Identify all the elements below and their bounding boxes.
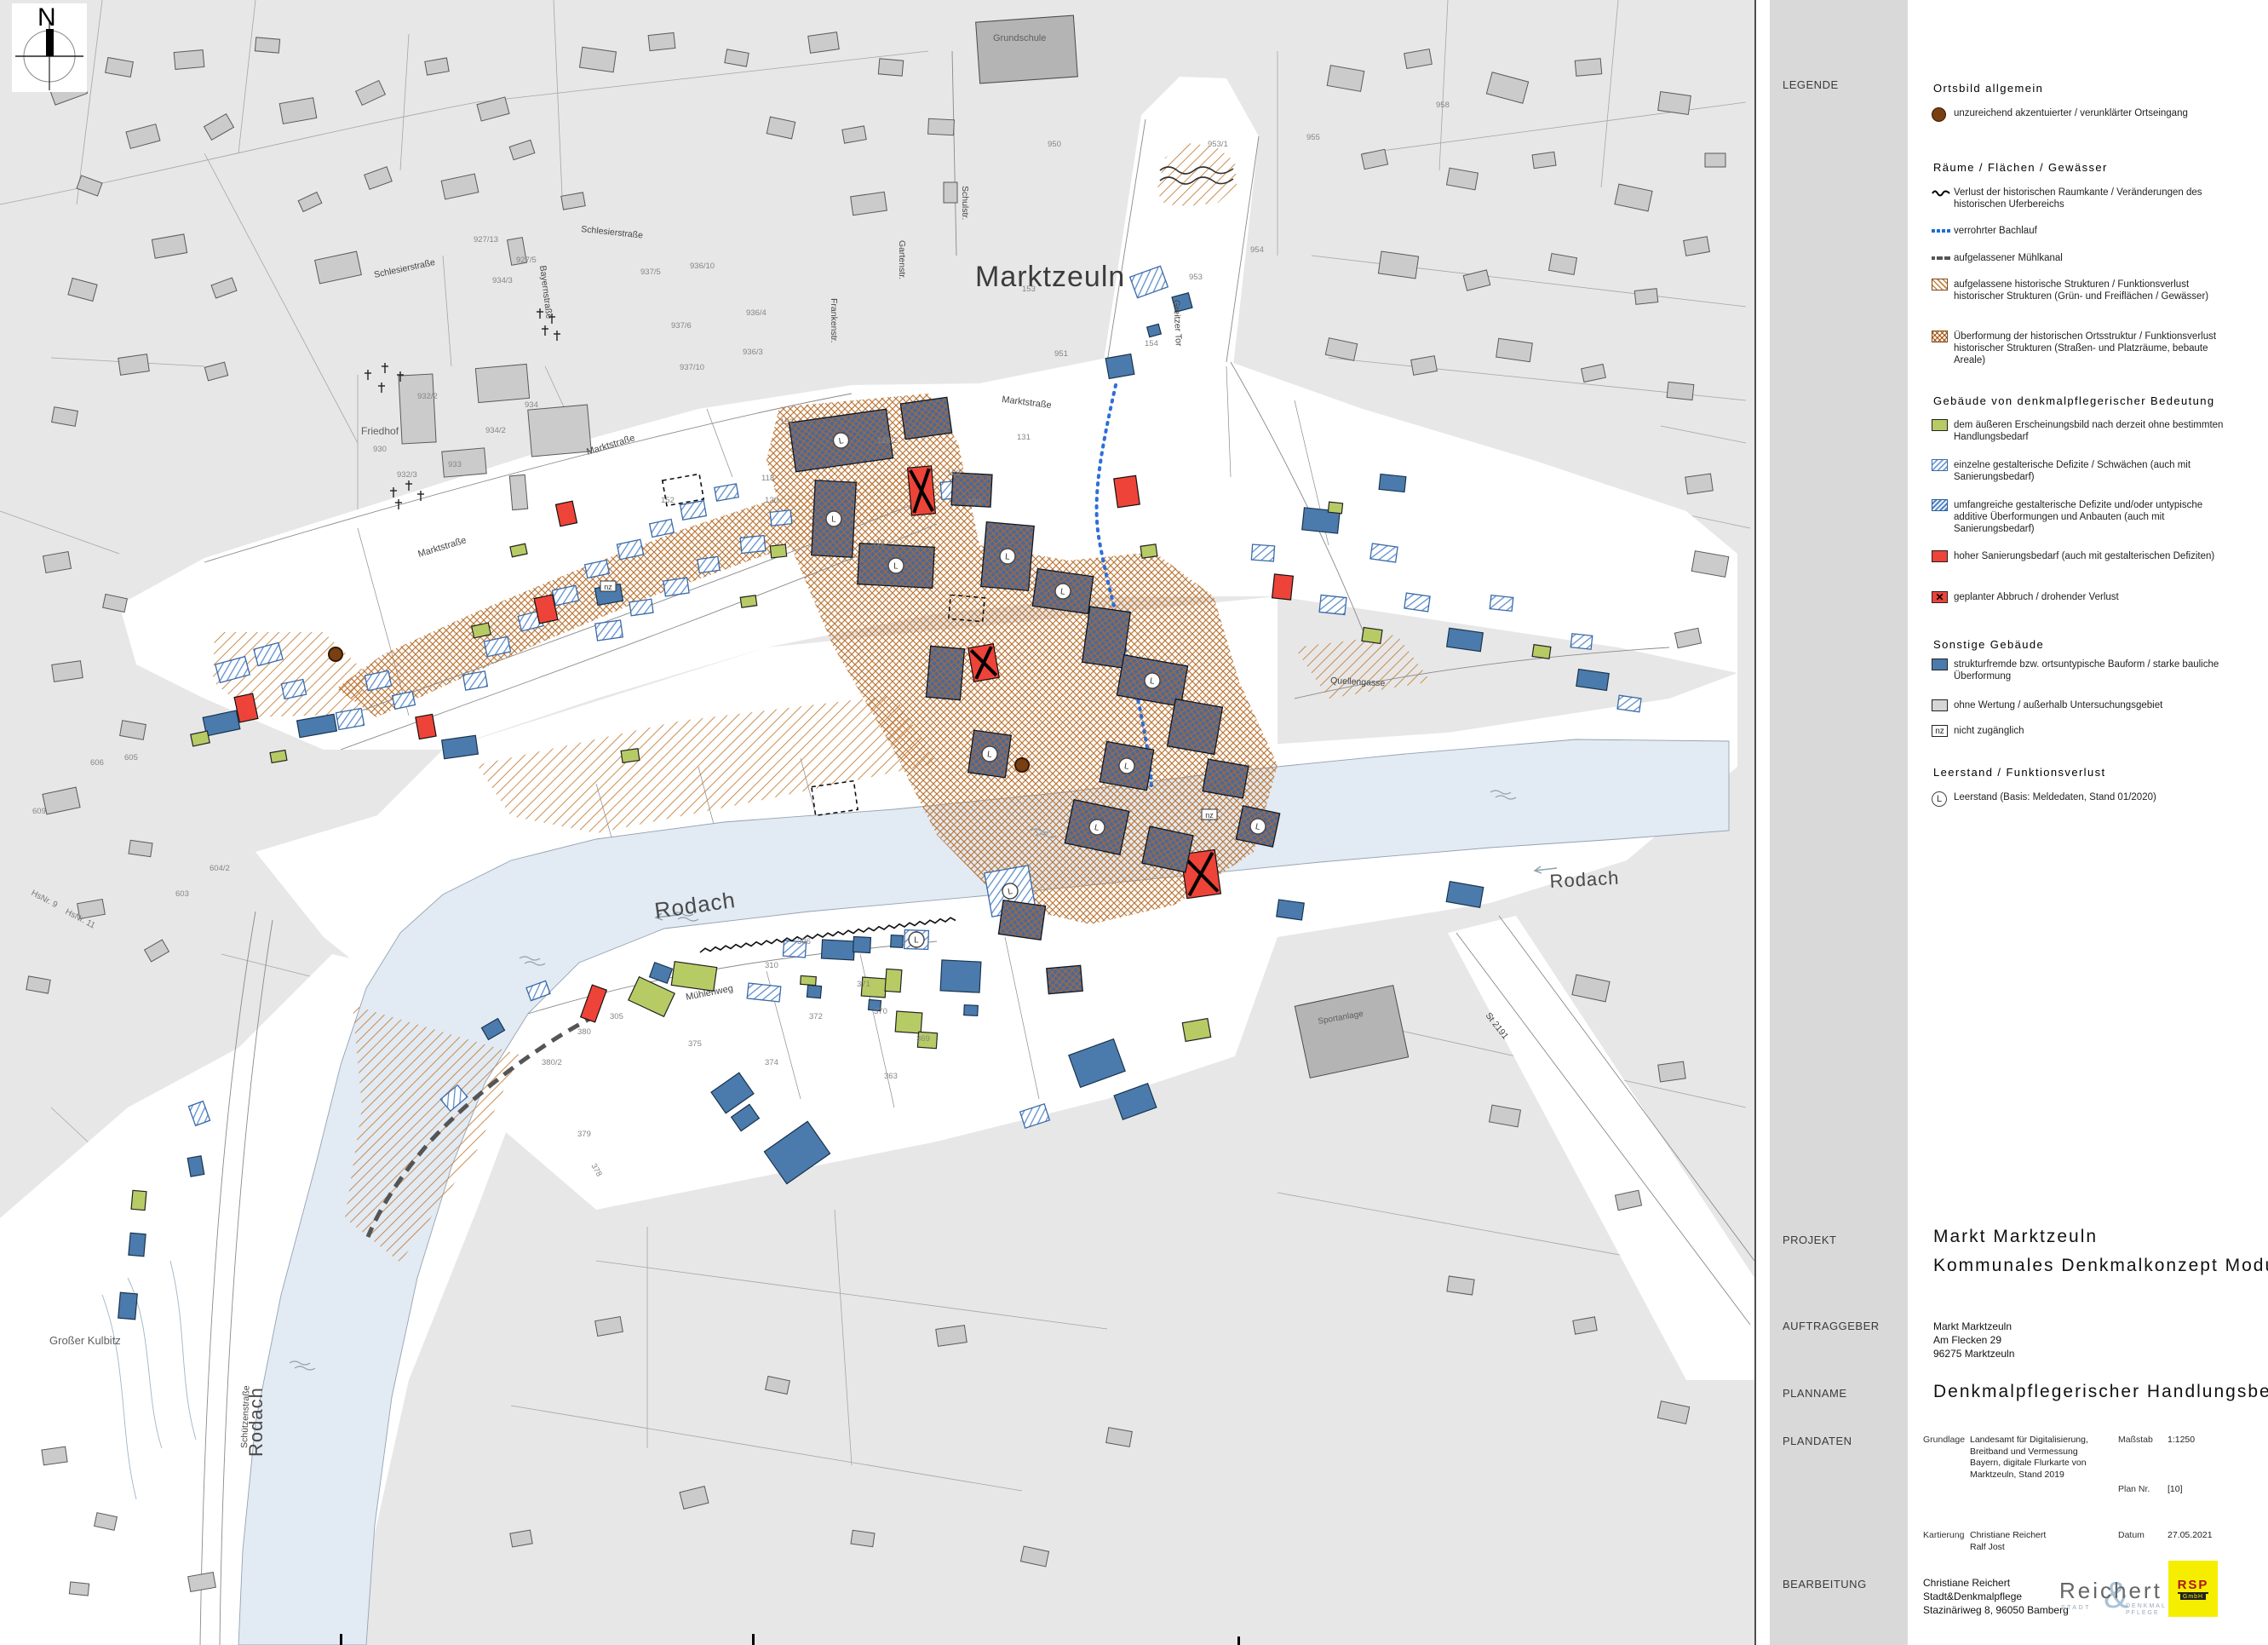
area-label: Großer Kulbitz: [49, 1334, 121, 1347]
reichert-logo-denkmalpflege: DENKMAL PFLEGE: [2126, 1603, 2167, 1617]
map-building-blue-solid: [1105, 354, 1134, 379]
map-building-green: [1532, 645, 1551, 659]
parcel-label: 375: [688, 1039, 702, 1049]
parcel-label: 118: [761, 474, 774, 483]
parcel-label: 937/5: [640, 267, 661, 277]
area-label: Grundschule: [993, 33, 1046, 43]
parcel-label: 369: [916, 1034, 930, 1044]
map-building-gray: [69, 1582, 89, 1596]
map-building-gray-large: [976, 15, 1078, 83]
gray-box-icon: [1932, 699, 1954, 711]
parcel-label: 951: [1054, 349, 1068, 359]
map-building-gray: [509, 475, 527, 509]
parcel-label: 936/4: [746, 308, 767, 318]
legend-item-text: nicht zugänglich: [1954, 725, 2235, 737]
legend-item-text: geplanter Abbruch / drohender Verlust: [1954, 591, 2235, 603]
parcel-label: 927/13: [474, 235, 498, 244]
map-building-green: [1182, 1019, 1210, 1042]
legend-item-text: dem äußeren Erscheinungsbild nach derzei…: [1954, 419, 2235, 443]
ortseingang-dot-icon: [329, 647, 342, 661]
auftraggeber-label: AUFTRAGGEBER: [1783, 1320, 1880, 1332]
legend-item: strukturfremde bzw. ortsuntypische Baufo…: [1932, 659, 2235, 682]
parcel-label: 604/2: [210, 864, 230, 873]
map-building-blue-solid: [1447, 628, 1484, 651]
map-building-blue-hatch: [595, 620, 623, 641]
nz-box-icon: nz: [1932, 725, 1954, 737]
legend-item: verrohrter Bachlauf: [1932, 225, 2235, 237]
parcel-label: 606: [90, 758, 104, 768]
planname-title: Denkmalpflegerischer Handlungsbedarf: [1933, 1382, 2268, 1402]
map-building-blue-solid: [891, 935, 904, 948]
legend-item: umfangreiche gestalterische Defizite und…: [1932, 499, 2235, 535]
plannr-value: [10]: [2168, 1484, 2183, 1496]
svg-text:nz: nz: [1205, 811, 1214, 820]
parcel-label: 605: [124, 753, 138, 762]
map-building-gray: [580, 47, 617, 72]
parcel-label: 374: [765, 1058, 778, 1067]
legend-item: aufgelassener Mühlkanal: [1932, 252, 2235, 264]
map-building-green: [1362, 628, 1382, 644]
map-building-green: [885, 969, 902, 992]
map-building-green: [770, 544, 786, 558]
legend-item: Verlust der historischen Raumkante / Ver…: [1932, 187, 2235, 210]
parcel-label: 958: [1436, 101, 1450, 110]
map-building-green: [1140, 544, 1157, 558]
svg-text:L: L: [831, 515, 837, 524]
legend-item: aufgelassene historische Strukturen / Fu…: [1932, 279, 2235, 302]
map-building-dark-core: L: [812, 480, 857, 557]
parcel-label: 370: [874, 1007, 887, 1016]
map-canvas: LLLLLLLLLLLLnznzMarktzeulnRodachRodachRo…: [0, 0, 1757, 1645]
legende-label: LEGENDE: [1783, 78, 1839, 91]
parcel-label: 927/5: [516, 256, 537, 265]
blue-box-icon: [1932, 659, 1954, 670]
parcel-label: 310: [765, 961, 778, 970]
parcel-label: 379: [577, 1130, 591, 1139]
parcel-label: 131: [1017, 433, 1031, 442]
area-label: Friedhof: [361, 425, 399, 437]
bearbeitung-label: BEARBEITUNG: [1783, 1578, 1867, 1590]
map-building-gray: [1667, 382, 1694, 400]
map-building-red: [1272, 574, 1294, 600]
orange-crosshatch-icon: [1932, 331, 1954, 342]
map-building-dark-core: [998, 900, 1045, 940]
nz-marker: nz: [1202, 809, 1217, 820]
parcel-label: 126/2: [877, 436, 898, 446]
legend-item: nznicht zugänglich: [1932, 725, 2235, 737]
planname-label: PLANNAME: [1783, 1387, 1847, 1400]
parcel-label: 950: [1048, 140, 1061, 149]
map-building-gray: [944, 182, 957, 203]
section-label-band: LEGENDE PROJEKT AUFTRAGGEBER PLANNAME PL…: [1770, 0, 1908, 1645]
map-building-blue-solid: [187, 1156, 204, 1176]
map-building-blue-solid: [118, 1292, 138, 1320]
parcel-label: 937/10: [680, 363, 704, 372]
map-building-green: [895, 1011, 922, 1033]
map-building-gray: [1575, 59, 1601, 77]
projekt-label: PROJEKT: [1783, 1234, 1836, 1246]
rsp-logo-sub: GmbH: [2180, 1594, 2206, 1600]
map-building-red-x: [908, 466, 936, 515]
parcel-label: 380: [577, 1027, 591, 1037]
wavy-line-icon: [1932, 187, 1954, 202]
map-building-dark-core: L: [981, 522, 1034, 591]
legend-item-text: einzelne gestalterische Defizite / Schwä…: [1954, 459, 2235, 483]
ortseingang-dot-icon: [1015, 758, 1029, 772]
parcel-label: 933: [448, 460, 462, 469]
map-building-blue-solid: [129, 1233, 146, 1256]
brown-dot-icon: [1932, 107, 1954, 122]
map-building-green: [1328, 502, 1342, 514]
street-label: Frankenstr.: [829, 298, 839, 343]
map-building-blue-hatch: [336, 709, 364, 730]
map-building-gray: [878, 59, 903, 76]
red-box-icon: [1932, 550, 1954, 562]
legend-section-title: Sonstige Gebäude: [1933, 638, 2044, 651]
map-building-blue-hatch: [770, 510, 792, 526]
map-building-red: [416, 714, 436, 739]
massstab-value: 1:1250: [2168, 1435, 2195, 1447]
rsp-logo: RSP GmbH: [2168, 1561, 2218, 1617]
map-building-gray: [928, 118, 955, 135]
map-building-gray: [475, 364, 529, 402]
map-building-green: [270, 751, 287, 763]
map-building-gray: [1658, 1061, 1685, 1082]
parcel-label: 930: [373, 445, 387, 454]
map-building-gray: [648, 32, 675, 50]
map-building-gray: [52, 661, 83, 682]
map-building-gray: [1378, 251, 1418, 279]
svg-text:L: L: [893, 561, 899, 571]
blue-hatch-light-icon: [1932, 459, 1954, 471]
parcel-label: 129: [947, 469, 961, 478]
map-building-dark-core: L: [1236, 806, 1279, 847]
parcel-label: 609: [32, 807, 46, 816]
parcel-label: 932/3: [397, 470, 417, 480]
reichert-logo: & Reichert STADT DENKMAL PFLEGE: [2059, 1573, 2174, 1625]
street-label: Gartenstr.: [897, 240, 907, 279]
parcel-label: 932/2: [417, 392, 438, 401]
parcel-label: 954: [1250, 245, 1264, 255]
parcel-label: 120: [765, 496, 778, 505]
map-building-blue-hatch: [463, 671, 488, 690]
map-building-blue-solid: [964, 1005, 979, 1016]
compass-rose: N: [12, 3, 87, 92]
map-building-dark-core: [1203, 759, 1249, 798]
legend-item-text: Verlust der historischen Raumkante / Ver…: [1954, 187, 2235, 210]
map-building-blue-solid: [1277, 900, 1304, 920]
legend-section-title: Ortsbild allgemein: [1933, 82, 2043, 95]
map-building-blue-hatch: [629, 599, 653, 615]
red-x-box-icon: ✕: [1932, 591, 1954, 603]
map-building-gray: [808, 32, 839, 54]
legend-item-text: aufgelassene historische Strukturen / Fu…: [1954, 279, 2235, 302]
map-building-blue-hatch: [1370, 544, 1398, 562]
town-label: Marktzeuln: [975, 261, 1125, 293]
parcel-label: 603: [175, 889, 189, 899]
legend-and-titleblock: Ortsbild allgemeinunzureichend akzentuie…: [1908, 0, 2268, 1645]
map-building-dark-core: [926, 646, 964, 699]
map-building-blue-hatch: [663, 578, 689, 596]
map-building-gray: [851, 1530, 875, 1546]
blue-hatch-heavy-icon: [1932, 499, 1954, 511]
legend-section-title: Leerstand / Funktionsverlust: [1933, 766, 2106, 779]
legend-item-text: strukturfremde bzw. ortsuntypische Baufo…: [1954, 659, 2235, 682]
map-building-blue-solid: [807, 985, 821, 998]
legend-section-title: Räume / Flächen / Gewässer: [1933, 161, 2108, 174]
legend-item: unzureichend akzentuierter / verunklärte…: [1932, 107, 2235, 122]
map-building-dark-core: L: [1032, 569, 1093, 614]
parcel-label: 934/2: [485, 426, 506, 435]
map-building-gray: [1634, 289, 1658, 305]
map-building-gray: [528, 405, 592, 457]
gray-dash-icon: [1932, 252, 1954, 260]
map-building-dark-core: L: [858, 544, 934, 589]
parcel-label: 152: [780, 417, 794, 427]
map-building-dark-core: L: [1100, 742, 1153, 791]
map-building-blue-hatch: [1319, 595, 1346, 614]
parcel-label: 130: [967, 498, 981, 507]
map-building-gray: [510, 1530, 532, 1547]
rsp-logo-name: RSP: [2178, 1578, 2209, 1594]
map-building-dark-core: [1168, 699, 1223, 755]
map-building-blue-solid: [821, 940, 854, 960]
parcel-label: 380/2: [542, 1058, 562, 1067]
kartierung-label: Kartierung: [1923, 1530, 1964, 1540]
river-label: Rodach: [1549, 867, 1620, 892]
map-building-green: [621, 749, 640, 763]
grundlage-label: Grundlage: [1923, 1435, 1965, 1445]
blue-dash-icon: [1932, 225, 1954, 233]
legend-section-title: Gebäude von denkmalpflegerischer Bedeutu…: [1933, 394, 2215, 407]
map-building-dark-core: [900, 397, 951, 439]
grundlage-value: Landesamt für Digitalisierung, Breitband…: [1970, 1435, 2108, 1481]
map-building-blue-hatch: [747, 983, 781, 1002]
parcel-label: 363: [884, 1072, 898, 1081]
parcel-label: 934/3: [492, 276, 513, 285]
kartierung-value: Christiane Reichert Ralf Jost: [1970, 1530, 2046, 1553]
map-building-blue-solid: [853, 936, 871, 952]
legend-item-text: verrohrter Bachlauf: [1954, 225, 2235, 237]
plandaten-label: PLANDATEN: [1783, 1435, 1852, 1447]
bearbeitung-address: Christiane Reichert Stadt&Denkmalpflege …: [1923, 1576, 2069, 1617]
svg-text:L: L: [914, 935, 919, 945]
map-building-green: [740, 595, 756, 607]
parcel-label: 153: [1022, 285, 1036, 294]
map-building-gray: [1532, 152, 1556, 168]
legend-item: hoher Sanierungsbedarf (auch mit gestalt…: [1932, 550, 2235, 562]
map-building-blue-hatch: [740, 536, 766, 554]
legend-item-text: hoher Sanierungsbedarf (auch mit gestalt…: [1954, 550, 2235, 562]
green-box-icon: [1932, 419, 1954, 431]
legend-item-text: Leerstand (Basis: Meldedaten, Stand 01/2…: [1954, 791, 2235, 803]
parcel-label: 953: [1189, 273, 1203, 282]
plannr-label: Plan Nr.: [2118, 1484, 2150, 1494]
legend-item-text: aufgelassener Mühlkanal: [1954, 252, 2235, 264]
parcel-label: 936/10: [690, 262, 715, 271]
parcel-label: 934: [525, 400, 538, 410]
map-building-gray: [1705, 153, 1725, 167]
map-building-blue-solid: [940, 960, 981, 992]
map-building-green: [131, 1190, 146, 1210]
parcel-label: 305: [610, 1012, 623, 1021]
parcel-label: 955: [1306, 133, 1320, 142]
street-label: Schützenstraße: [239, 1385, 252, 1448]
map-building-blue-hatch: [1251, 544, 1274, 561]
legend-item: LLeerstand (Basis: Meldedaten, Stand 01/…: [1932, 791, 2235, 807]
projekt-title: Markt Marktzeuln: [1933, 1227, 2098, 1247]
leerstand-circle-icon: L: [1932, 791, 1954, 807]
legend-item: ohne Wertung / außerhalb Untersuchungsge…: [1932, 699, 2235, 711]
legend-item-text: unzureichend akzentuierter / verunklärte…: [1954, 107, 2235, 119]
reichert-logo-stadt: STADT: [2061, 1605, 2091, 1611]
map-building-blue-solid: [1379, 474, 1406, 492]
orange-hatch-icon: [1932, 279, 1954, 290]
plan-sheet: LLLLLLLLLLLLnznzMarktzeulnRodachRodachRo…: [0, 0, 2268, 1645]
parcel-label: 154: [1145, 339, 1158, 348]
legend-item-text: Überformung der historischen Ortsstruktu…: [1954, 331, 2235, 366]
map-building-dark-core: L: [968, 730, 1012, 778]
map-building-gray: [936, 1326, 967, 1347]
map-building-red-x: [968, 644, 999, 682]
compass-north-label: N: [37, 3, 56, 32]
map-building-gray: [1685, 474, 1713, 494]
datum-label: Datum: [2118, 1530, 2145, 1540]
map-building-blue-hatch: [698, 556, 720, 572]
map-building-gray: [255, 37, 279, 53]
parcel-label: 371: [857, 980, 870, 989]
map-building-blue-solid: [442, 735, 479, 758]
map-building-red: [1114, 475, 1140, 507]
nz-marker: nz: [600, 581, 616, 591]
svg-text:nz: nz: [604, 583, 612, 591]
parcel-label: 306: [797, 937, 811, 946]
map-building-blue-hatch: [1490, 595, 1513, 612]
projekt-subtitle: Kommunales Denkmalkonzept Modul 2: [1933, 1256, 2268, 1276]
legend-item: Überformung der historischen Ortsstruktu…: [1932, 331, 2235, 366]
legend-item-text: ohne Wertung / außerhalb Untersuchungsge…: [1954, 699, 2235, 711]
parcel-label: 937/6: [671, 321, 692, 331]
massstab-label: Maßstab: [2118, 1435, 2153, 1445]
datum-value: 27.05.2021: [2168, 1530, 2213, 1542]
map-building-blue-hatch: [1570, 634, 1593, 649]
parcel-label: 372: [809, 1012, 823, 1021]
auftraggeber-address: Markt Marktzeuln Am Flecken 29 96275 Mar…: [1933, 1320, 2014, 1360]
map-building-dark-core: [1047, 965, 1082, 993]
parcel-label: 936/3: [743, 348, 763, 357]
parcel-label: 953/1: [1208, 140, 1228, 149]
legend-item-text: umfangreiche gestalterische Defizite und…: [1954, 499, 2235, 535]
map-building-gray: [42, 1447, 67, 1465]
legend-item: einzelne gestalterische Defizite / Schwä…: [1932, 459, 2235, 483]
map-building-blue-hatch: L: [904, 930, 929, 950]
street-label: Schulstr.: [960, 186, 970, 220]
map-building-blue-hatch: [1617, 695, 1641, 711]
parcel-label: 152: [661, 496, 675, 505]
reichert-logo-name: Reichert: [2059, 1578, 2162, 1604]
parcel-label: 112: [872, 538, 885, 548]
map-building-green: [801, 975, 817, 985]
map-building-gray: [1658, 92, 1691, 115]
map-building-gray: [129, 840, 152, 856]
map-building-gray: [1447, 1276, 1474, 1295]
legend-item: ✕geplanter Abbruch / drohender Verlust: [1932, 591, 2235, 603]
map-building-gray: [399, 374, 436, 444]
legend-item: dem äußeren Erscheinungsbild nach derzei…: [1932, 419, 2235, 443]
map-building-blue-solid: [1576, 670, 1609, 691]
map-building-gray: [118, 354, 149, 376]
map-building-gray: [174, 50, 204, 70]
map-building-blue-hatch: [1404, 593, 1430, 612]
